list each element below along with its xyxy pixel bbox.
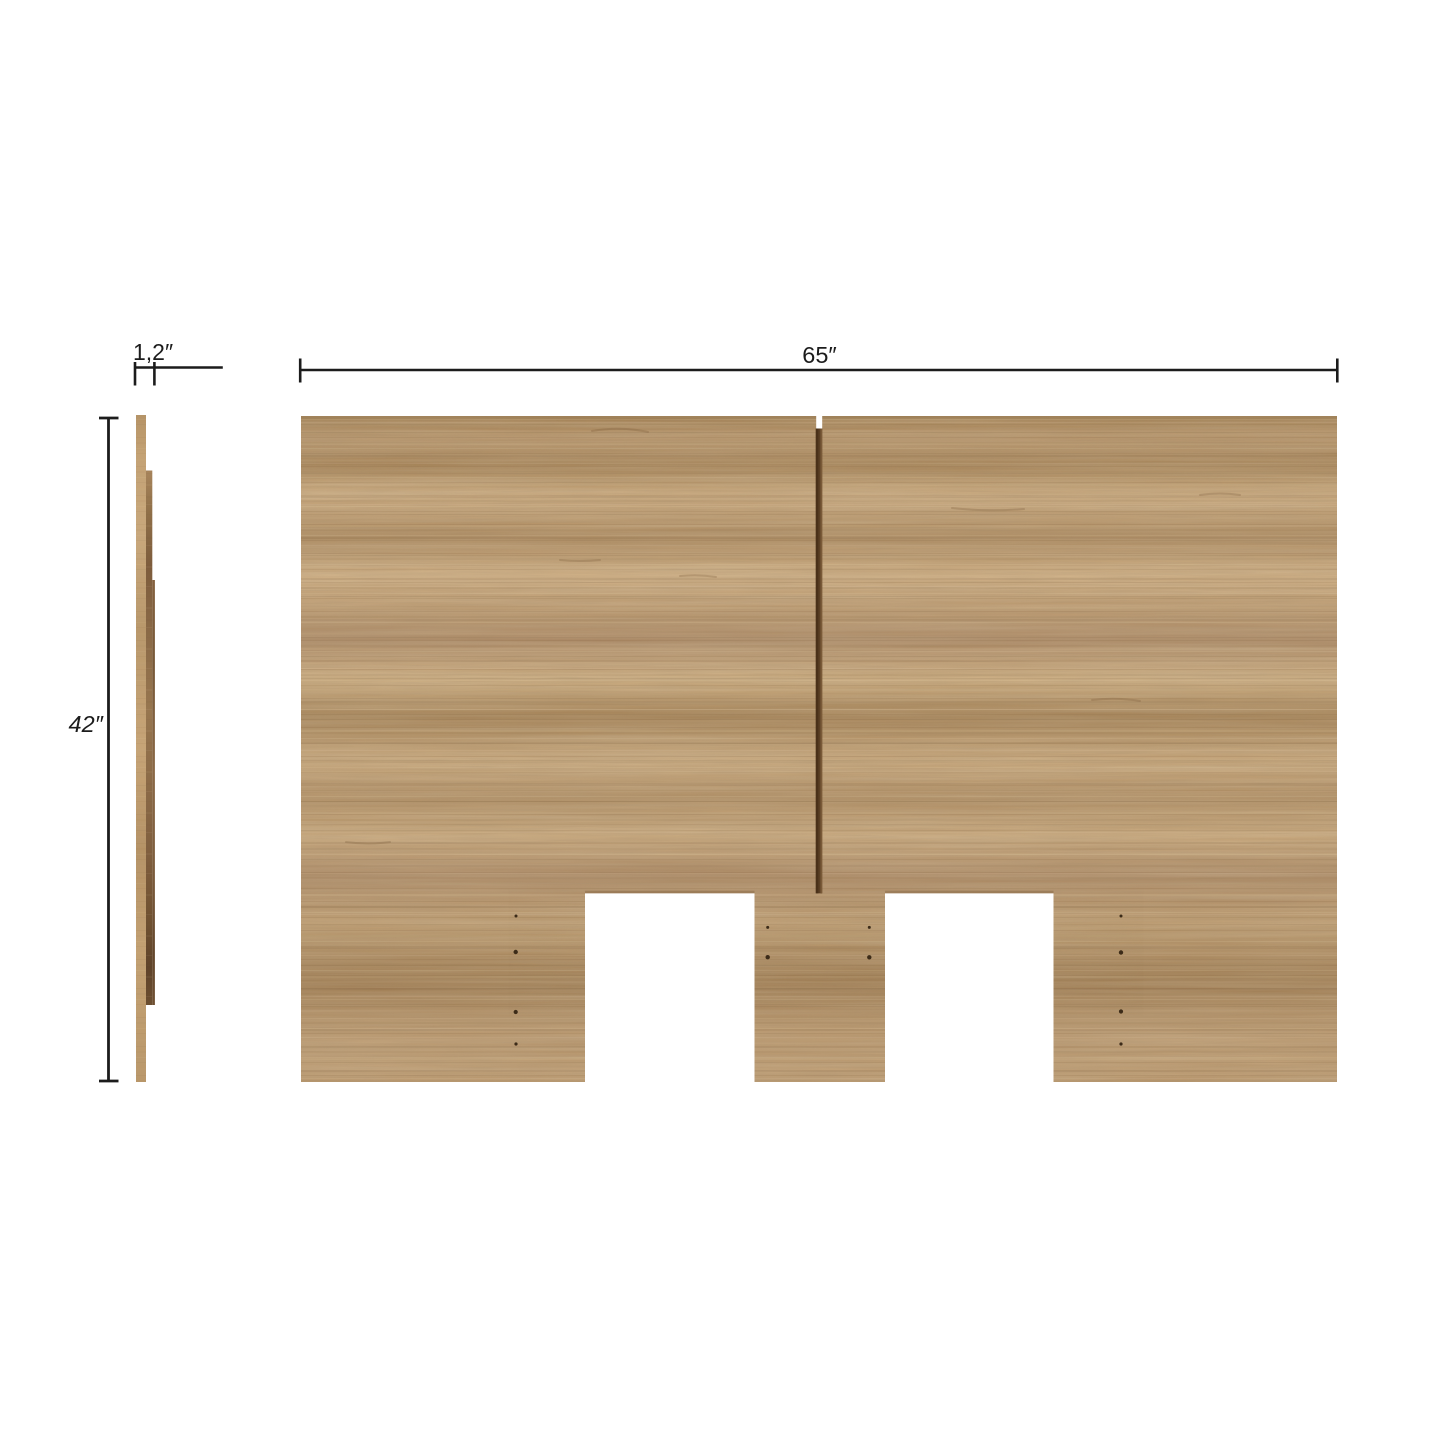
svg-text:1,2″: 1,2″ xyxy=(133,339,173,365)
svg-text:42″: 42″ xyxy=(69,711,104,737)
svg-text:65″: 65″ xyxy=(802,342,836,368)
